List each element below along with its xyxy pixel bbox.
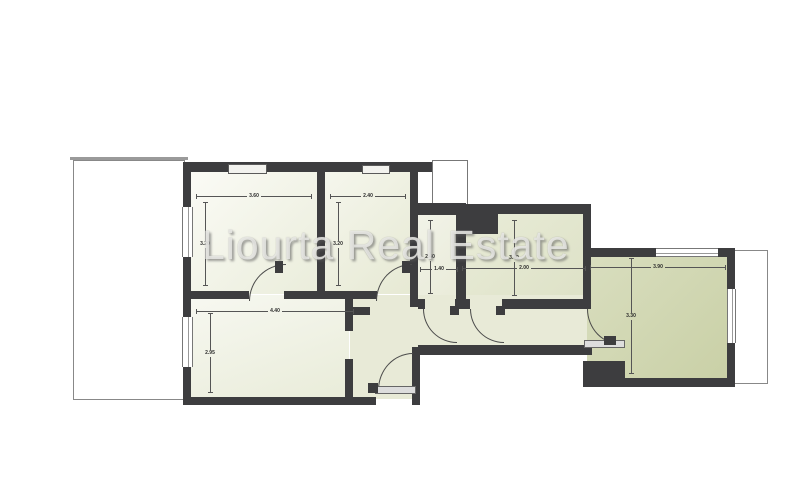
door-leaf-kitchen bbox=[496, 306, 505, 315]
door-leaf-entry bbox=[375, 386, 416, 394]
window-living-east bbox=[727, 289, 736, 343]
terrace-left bbox=[73, 160, 185, 400]
dim-living-width: 3.90 bbox=[590, 262, 726, 272]
wall-recess bbox=[362, 165, 390, 174]
dim-label: 3.30 bbox=[626, 313, 636, 320]
wall bbox=[183, 162, 191, 405]
wall bbox=[183, 397, 376, 405]
dim-bedroom-1-width: 3.60 bbox=[196, 191, 312, 201]
wall bbox=[418, 345, 592, 355]
wall bbox=[284, 291, 377, 299]
light-shaft bbox=[432, 160, 468, 207]
wall bbox=[456, 204, 590, 214]
dim-living-height: 3.30 bbox=[623, 258, 639, 374]
dim-label: 2.95 bbox=[205, 350, 215, 357]
wall bbox=[418, 299, 425, 309]
wall bbox=[412, 347, 420, 405]
window-bedroom-1 bbox=[182, 207, 193, 257]
watermark-text: Liourta Real Estate bbox=[202, 222, 570, 269]
dim-bedroom-2-width: 2.40 bbox=[330, 191, 406, 201]
dim-bedroom-3-height: 2.95 bbox=[202, 313, 218, 393]
dim-label: 3.60 bbox=[247, 194, 261, 199]
dim-label: 3.90 bbox=[651, 265, 665, 270]
door-hinge-living bbox=[604, 336, 616, 345]
wall bbox=[502, 299, 590, 309]
wall bbox=[183, 291, 249, 299]
wall bbox=[183, 162, 432, 172]
window-living-north bbox=[656, 248, 718, 257]
balcony-right bbox=[733, 250, 768, 384]
wall-recess bbox=[228, 164, 267, 174]
wall bbox=[583, 361, 625, 387]
window-bedroom-3 bbox=[182, 317, 193, 367]
dim-bedroom-3-width: 4.40 bbox=[196, 306, 354, 316]
dim-label: 2.40 bbox=[361, 194, 375, 199]
door-leaf-bathroom bbox=[450, 306, 459, 315]
floor-plan: 3.60 3.20 2.40 3.20 2.40 1.40 3.40 2.00 … bbox=[0, 0, 793, 490]
dim-label: 4.40 bbox=[268, 309, 282, 314]
door-hinge-entry bbox=[368, 383, 378, 393]
wall bbox=[345, 359, 353, 397]
